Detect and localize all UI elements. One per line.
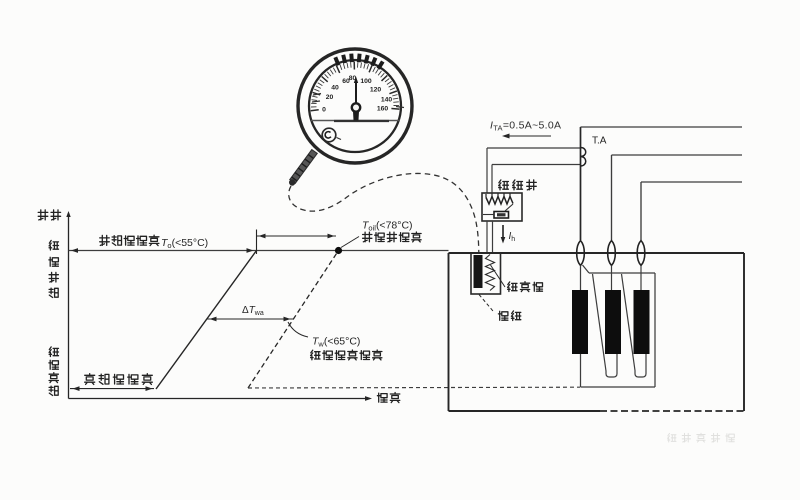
- svg-text:160: 160: [377, 106, 389, 113]
- svg-text:100: 100: [360, 78, 372, 85]
- svg-text:140: 140: [381, 97, 393, 104]
- svg-text:0: 0: [322, 107, 326, 114]
- svg-text:120: 120: [370, 87, 382, 94]
- svg-text:20: 20: [326, 94, 334, 101]
- svg-text:40: 40: [331, 85, 339, 92]
- svg-text:T.A: T.A: [592, 136, 607, 147]
